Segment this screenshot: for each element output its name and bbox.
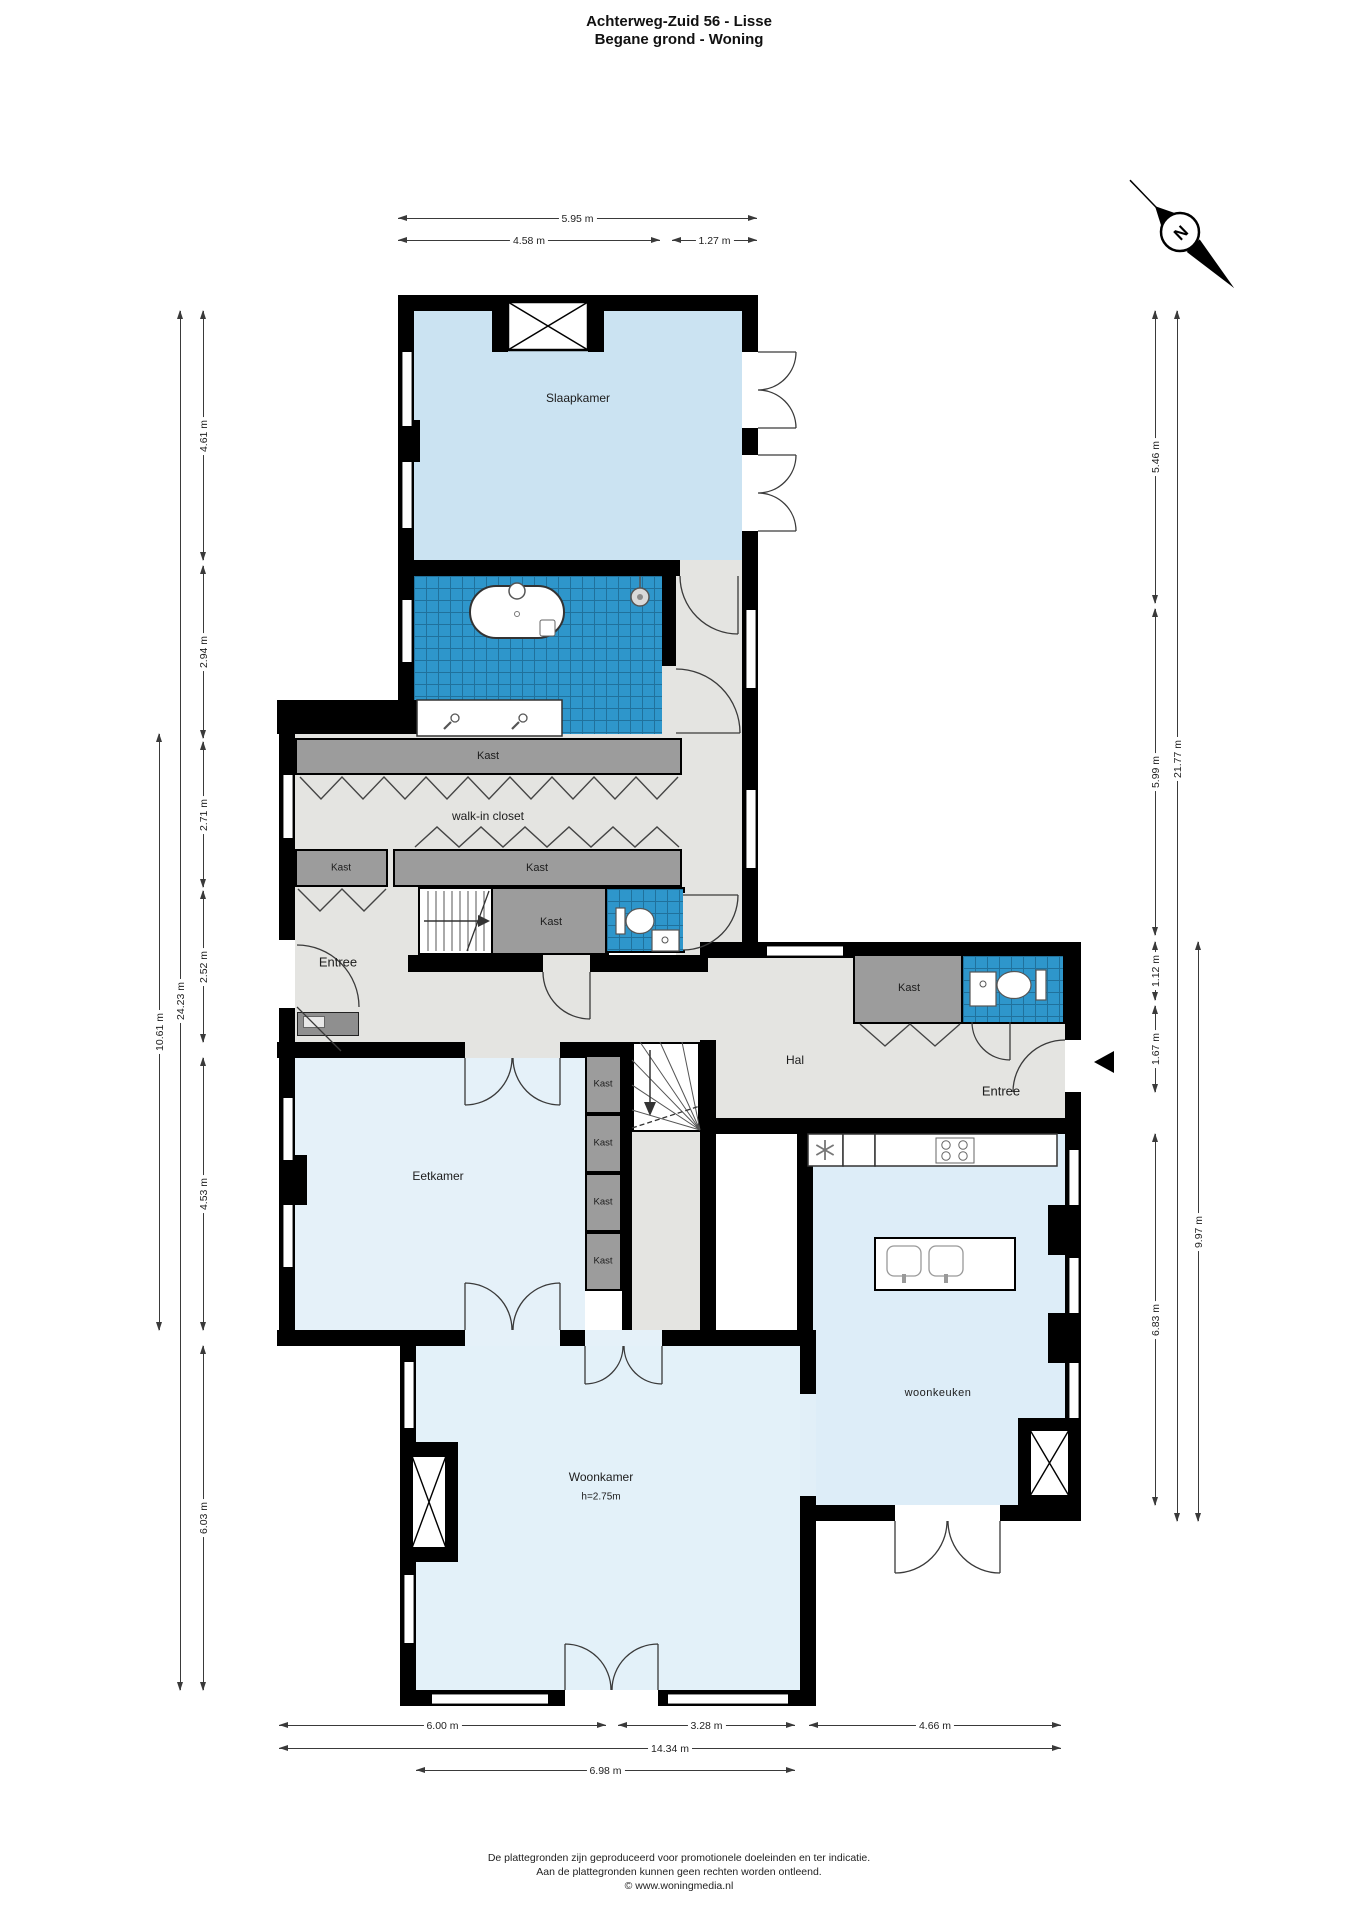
dim-left-1061: 10.61 m [159,734,160,1330]
label-eetkamer: Eetkamer [412,1169,463,1183]
chimney-left-icon [412,1456,446,1548]
label-kast-hal: Kast [898,982,920,994]
dim-bottom-328: 3.28 m [618,1725,795,1726]
dormer-window-icon [508,302,588,350]
shower-icon [631,576,649,606]
toilet-middle-icon [616,908,679,951]
label-kast-long: Kast [526,862,548,874]
dim-left-294: 2.94 m [203,566,204,738]
floorplan-page: Achterweg-Zuid 56 - Lisse Begane grond -… [0,0,1358,1920]
door-slaapkamer-french-2 [758,455,796,531]
dim-top-595: 5.95 m [398,218,757,219]
dim-left-603: 6.03 m [203,1346,204,1690]
folding-doors-closet-hal [860,1024,960,1046]
dim-left-252: 2.52 m [203,891,204,1042]
dim-bottom-1434: 14.34 m [279,1748,1061,1749]
footer-line-1: De plattegronden zijn geproduceerd voor … [0,1852,1358,1864]
label-kast-col-1: Kast [593,1079,612,1090]
label-kast-stairs: Kast [540,916,562,928]
dim-left-271: 2.71 m [203,742,204,887]
staircase-straight [424,891,490,951]
label-kast-col-3: Kast [593,1197,612,1208]
dim-left-2423: 24.23 m [180,311,181,1690]
page-subtitle: Begane grond - Woning [0,31,1358,48]
kitchen-counter [875,1134,1057,1166]
door-woonkamer-bottom [565,1644,658,1690]
door-wc-hal [972,1022,1010,1060]
label-slaapkamer: Slaapkamer [546,391,610,405]
dim-right-2177: 21.77 m [1177,311,1178,1521]
folding-doors-walk-in [415,827,679,847]
dim-top-458: 4.58 m [398,240,660,241]
dim-left-461: 4.61 m [203,311,204,560]
dim-bottom-466: 4.66 m [809,1725,1061,1726]
staircase-winder [632,1042,700,1130]
door-hal-middle [543,972,590,1019]
label-kast-small: Kast [331,863,351,874]
label-entree-right: Entree [982,1084,1020,1099]
dim-top-127: 1.27 m [672,240,757,241]
door-slaapkamer-corridor [680,576,738,634]
folding-doors-closet-small [298,889,386,911]
label-kast-col-4: Kast [593,1256,612,1267]
toilet-hal-icon [970,970,1046,1006]
kitchen-island [875,1238,1015,1290]
footer-line-3: © www.woningmedia.nl [0,1880,1358,1892]
dim-bottom-698: 6.98 m [416,1770,795,1771]
label-entree-left: Entree [319,955,357,970]
door-bathroom [676,669,740,733]
label-kast-bathroom: Kast [477,750,499,762]
label-woonkamer: Woonkamer [569,1470,633,1484]
dim-right-112: 1.12 m [1155,942,1156,1000]
dim-right-599: 5.99 m [1155,609,1156,935]
door-woonkamer-top [585,1346,662,1384]
door-eetkamer-top [465,1058,560,1105]
door-wc-middle [683,895,738,950]
folding-doors-closet-bathroom [300,777,678,799]
footer-line-2: Aan de plattegronden kunnen geen rechten… [0,1866,1358,1878]
dim-right-546: 5.46 m [1155,311,1156,603]
entrance-arrow-icon [1094,1051,1114,1073]
label-walk-in-closet: walk-in closet [452,809,524,823]
compass-icon: N [1116,167,1248,301]
door-woonkeuken-terrace [895,1521,1000,1573]
page-title: Achterweg-Zuid 56 - Lisse [0,13,1358,30]
dim-right-167: 1.67 m [1155,1006,1156,1092]
dim-right-683: 6.83 m [1155,1134,1156,1505]
label-hal: Hal [786,1053,804,1067]
dim-bottom-600: 6.00 m [279,1725,606,1726]
door-eetkamer-bottom [465,1283,560,1330]
dim-right-997: 9.97 m [1198,942,1199,1521]
bath-sink-counter-icon [417,700,562,736]
label-woonkeuken: woonkeuken [905,1387,972,1399]
fridge-icon [808,1134,843,1166]
chimney-right-icon [1030,1430,1069,1496]
door-slaapkamer-french-1 [758,352,796,428]
label-kast-col-2: Kast [593,1138,612,1149]
label-woonkamer-height: h=2.75m [581,1492,620,1503]
dim-left-453: 4.53 m [203,1058,204,1330]
door-front-right [1013,1040,1065,1092]
bathtub-icon [470,583,564,638]
kitchen-cabinet-icon [843,1134,875,1166]
